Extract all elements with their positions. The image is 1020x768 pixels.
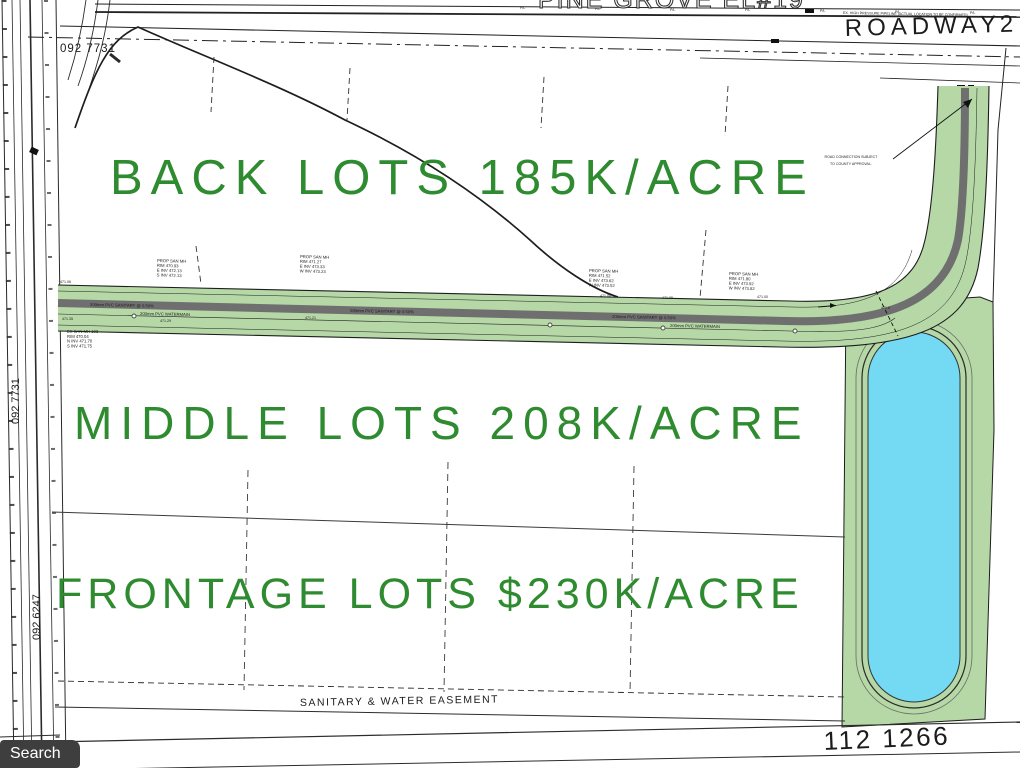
note-line: TO COUNTY APPROVAL. [830,162,872,166]
frontage-lots-price-label: FRONTAGE LOTS $230K/ACRE [56,570,804,619]
clipped-subdivision-title: PINE GROVE EL#19 [538,0,805,15]
mh-text: S INV 472.13 [157,272,183,278]
elevation-label: 471.21 [305,316,316,320]
watermain-label: 200mm PVC WATERMAIN [140,311,190,317]
elevation-label: 471.00 [757,295,768,299]
roadway-label: ROADWAY [844,11,1001,42]
easement-label: SANITARY & WATER EASEMENT [300,694,499,709]
elevation-label: 471.06 [60,280,71,284]
middle-lots-price-label: MIDDLE LOTS 208K/ACRE [74,396,810,450]
existing-manhole-label: EX SAN MH 103 RIM 470.04 N INV 471.70 S … [67,329,99,348]
search-button[interactable]: Search [0,740,80,768]
manhole-label-4: PROP SAN MH RIM 471.80 E INV 473.92 W IN… [729,271,759,291]
manhole-label-3: PROP SAN MH RIM 471.52 E INV 473.62 W IN… [589,268,619,288]
elevation-label: 471.05 [662,296,673,300]
manhole-label-2: PROP SAN MH RIM 471.27 E INV 473.33 W IN… [300,254,330,274]
pond-elevation-label: 471.8 [881,306,890,310]
mh-text: W INV 473.52 [589,282,616,288]
mh-text: W INV 473.23 [300,268,327,274]
note-line: ROAD CONNECTION SUBJECT [825,155,879,159]
pl-marker: P/L [520,6,525,10]
boundary-monument [29,147,39,156]
manhole-label-1: PROP SAN MH RIM 470.93 E INV 472.13 S IN… [157,258,187,278]
parcel-label-left-1: 092 7731 [10,378,22,424]
pond [868,332,960,702]
parcel-label-left-2: 092 6247 [31,594,43,640]
elevation-label: 471.29 [160,319,171,323]
plat-map-screenshot: P/L P/L P/L P/L P/L P/L P/L EX. HIGH PRE… [0,0,1020,768]
elevation-label: 471.08 [600,294,611,298]
pl-marker: P/L [820,9,825,13]
plat-linework-canvas: P/L P/L P/L P/L P/L P/L P/L EX. HIGH PRE… [0,0,1020,768]
mh-text: S INV 471.75 [67,343,93,348]
roadway-number: 2 [999,11,1013,38]
parcel-number-bottom: 112 1266 [823,721,951,756]
back-lots-price-label: BACK LOTS 185K/ACRE [110,150,815,206]
watermain-label: 200mm PVC WATERMAIN [670,323,720,329]
mh-text: W INV 473.82 [729,285,756,291]
elevation-label: 471.35 [62,317,73,321]
